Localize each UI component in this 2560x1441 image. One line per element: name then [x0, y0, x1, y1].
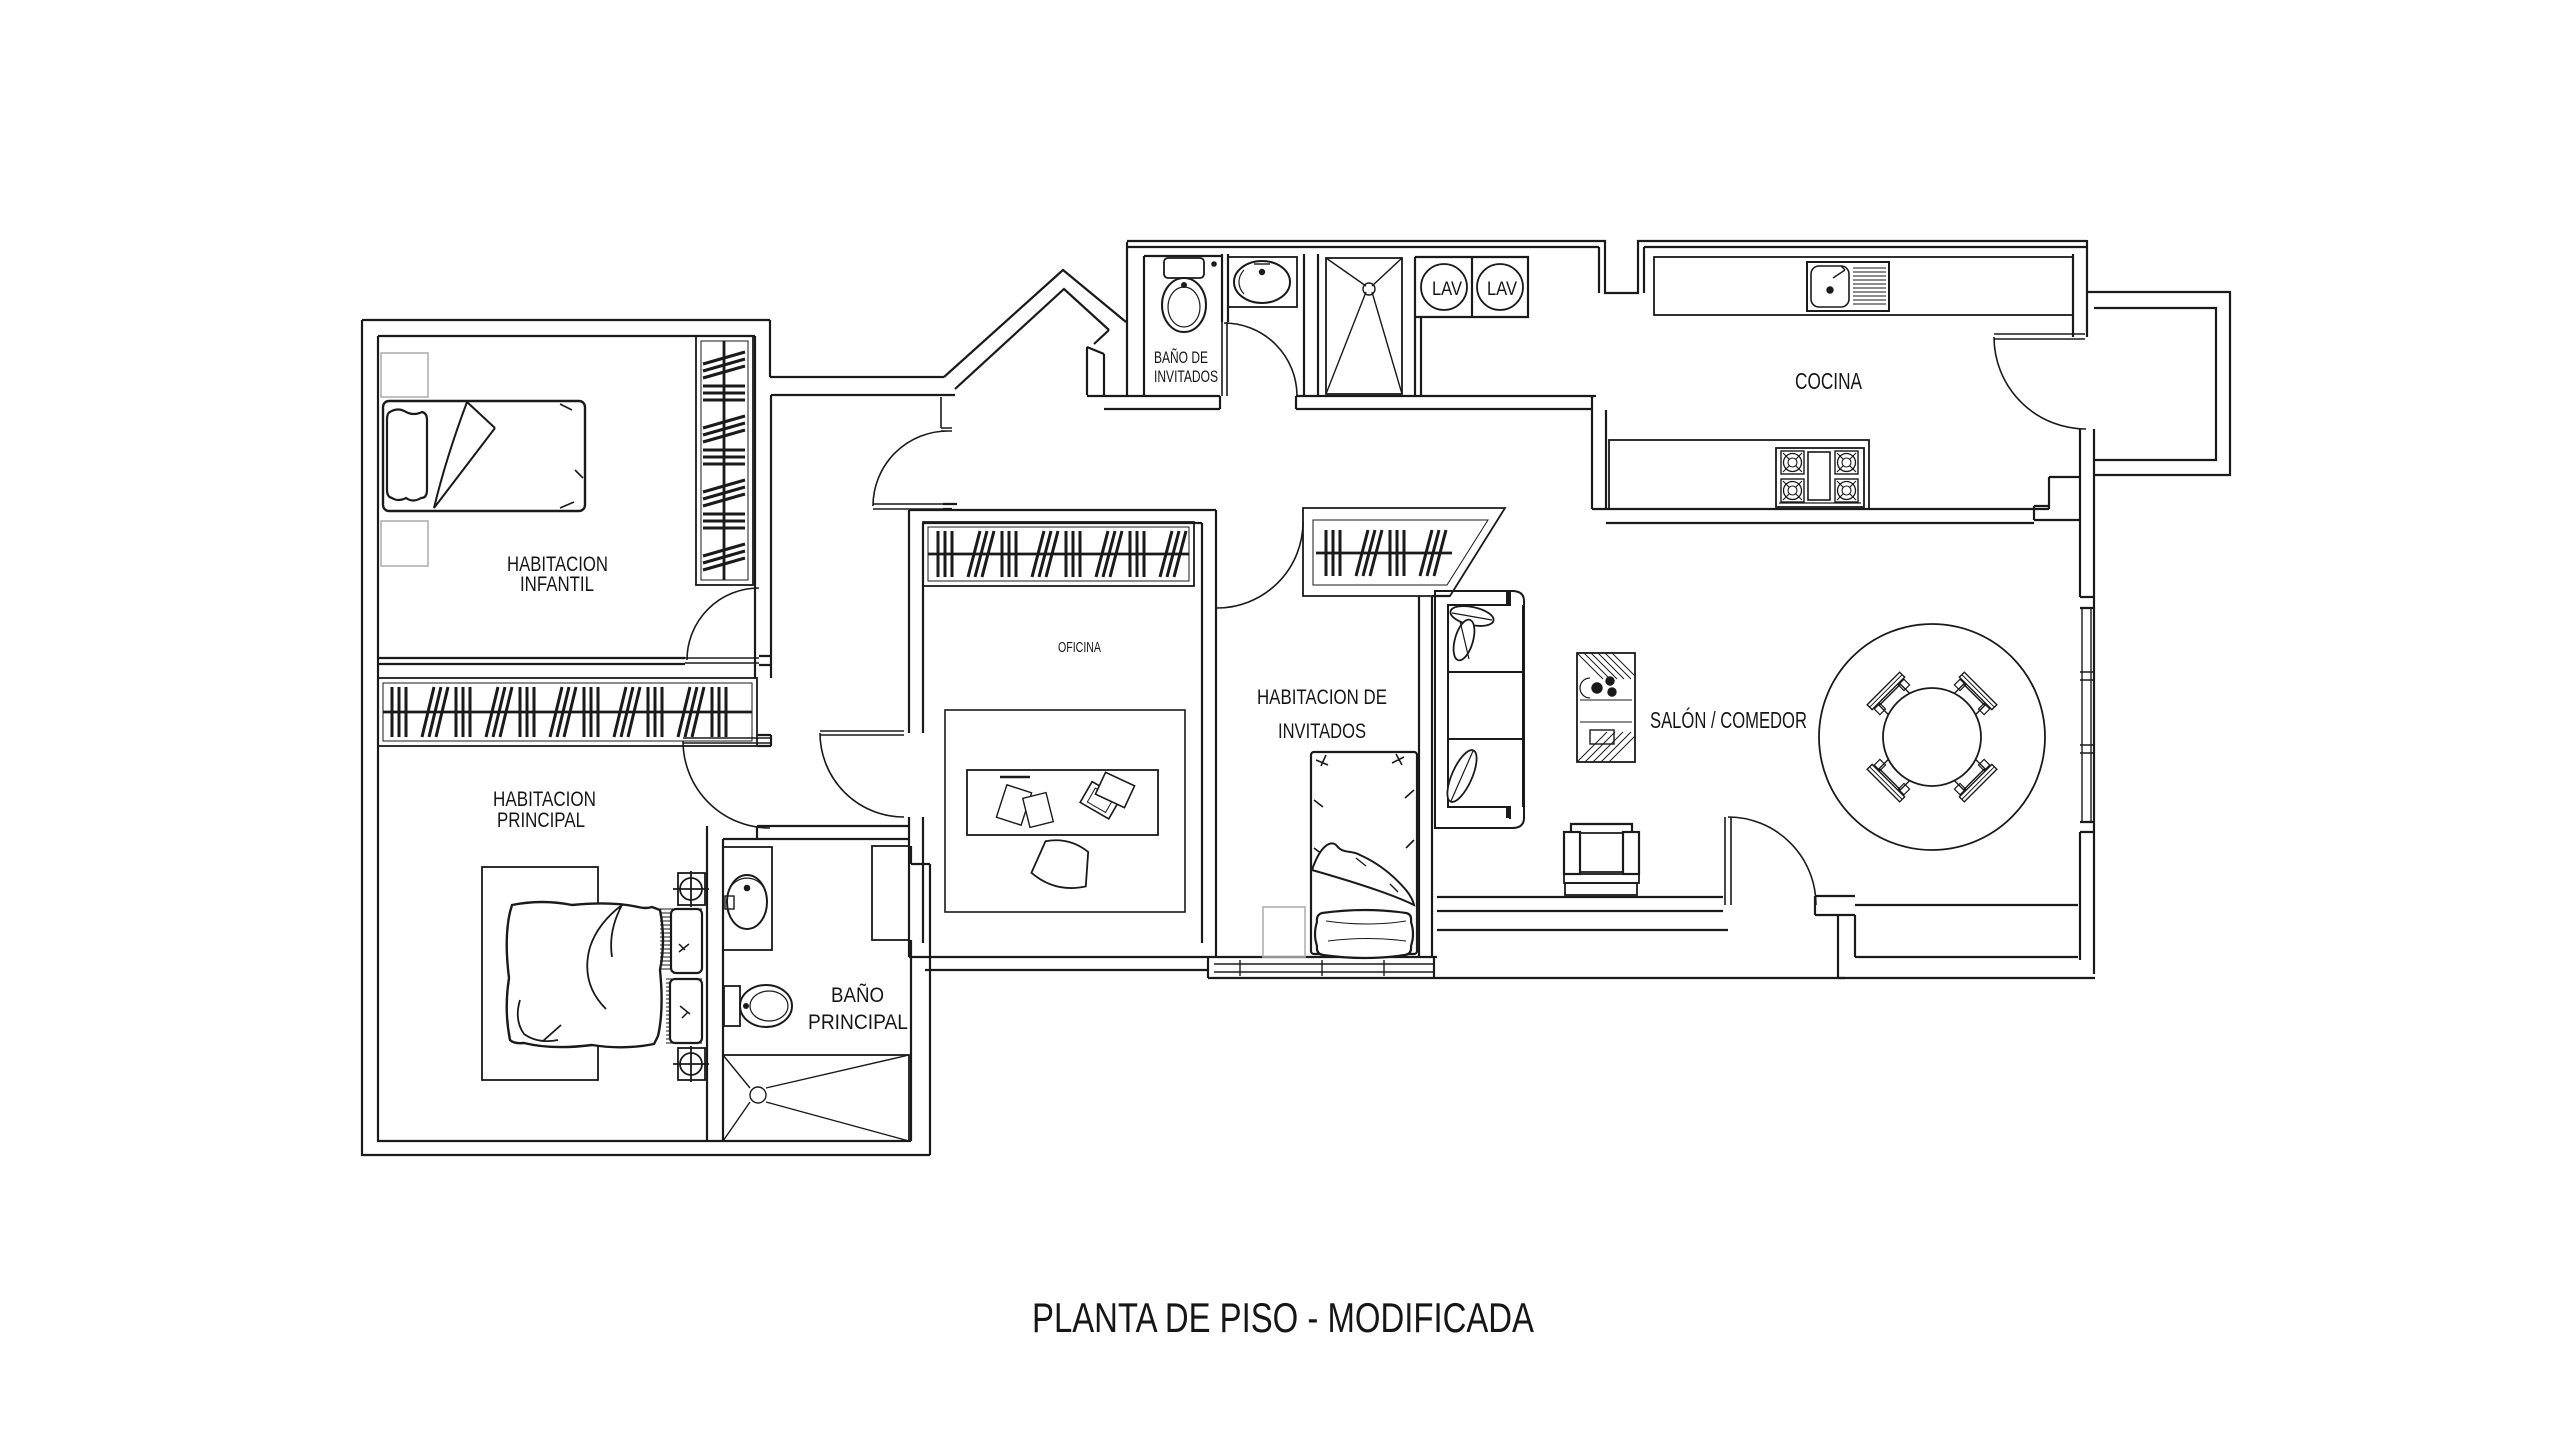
svg-text:OFICINA: OFICINA — [1058, 639, 1101, 656]
svg-text:LAV: LAV — [1487, 279, 1517, 300]
svg-text:BAÑO: BAÑO — [831, 982, 884, 1007]
svg-text:SALÓN / COMEDOR: SALÓN / COMEDOR — [1650, 707, 1807, 733]
svg-text:LAV: LAV — [1432, 279, 1462, 300]
svg-text:INFANTIL: INFANTIL — [520, 572, 594, 596]
svg-text:PLANTA DE PISO - MODIFICADA: PLANTA DE PISO - MODIFICADA — [1032, 1294, 1534, 1341]
svg-text:BAÑO DE: BAÑO DE — [1154, 348, 1208, 367]
svg-text:INVITADOS: INVITADOS — [1278, 719, 1366, 743]
svg-text:INVITADOS: INVITADOS — [1154, 367, 1218, 386]
svg-text:PRINCIPAL: PRINCIPAL — [497, 808, 585, 832]
svg-text:PRINCIPAL: PRINCIPAL — [808, 1010, 908, 1034]
svg-text:COCINA: COCINA — [1795, 368, 1862, 394]
svg-text:HABITACION DE: HABITACION DE — [1257, 685, 1387, 709]
